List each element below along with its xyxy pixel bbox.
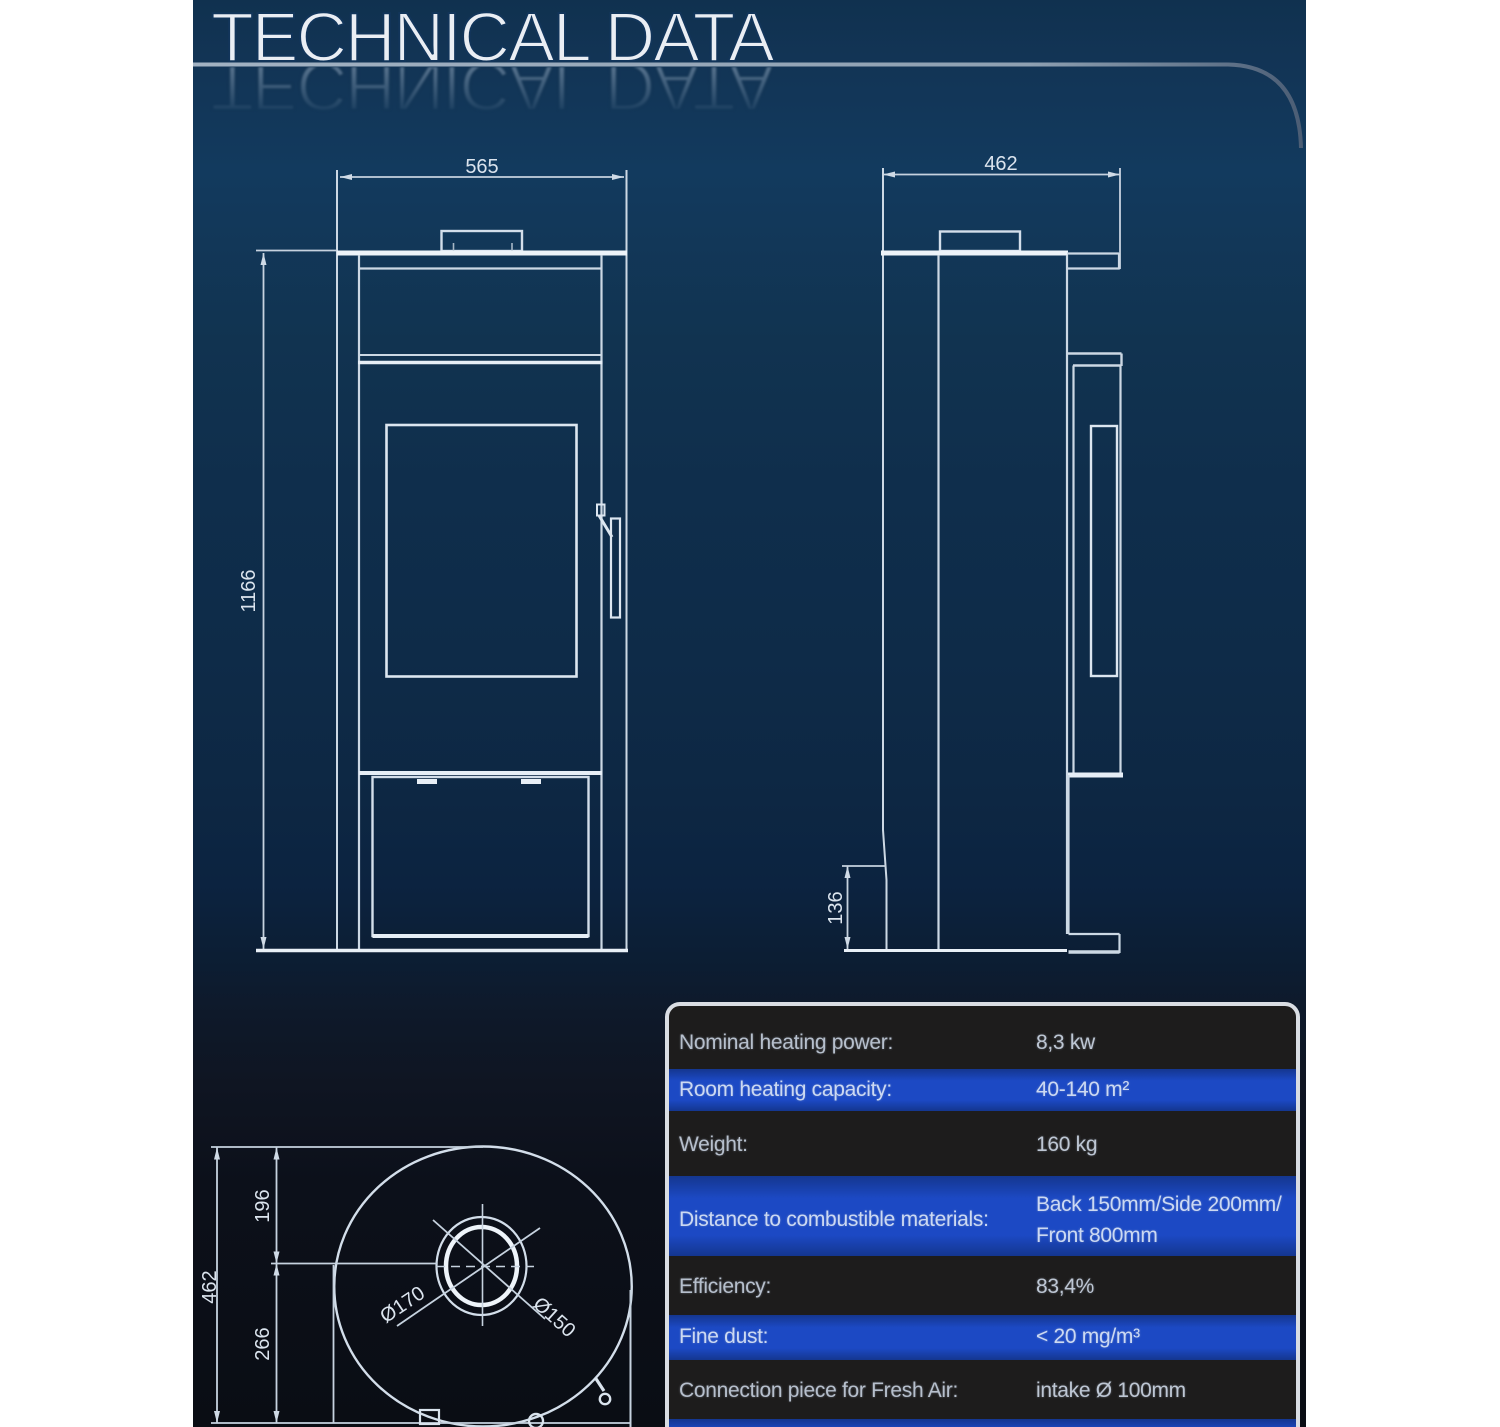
svg-text:Ø150: Ø150	[528, 1293, 579, 1342]
svg-text:266: 266	[252, 1327, 274, 1360]
svg-text:462: 462	[199, 1270, 221, 1303]
svg-text:Ø170: Ø170	[376, 1282, 429, 1328]
svg-text:462: 462	[984, 153, 1017, 175]
svg-text:565: 565	[465, 156, 498, 178]
svg-text:1166: 1166	[238, 569, 260, 612]
svg-text:136: 136	[825, 891, 847, 924]
svg-text:196: 196	[252, 1189, 274, 1222]
